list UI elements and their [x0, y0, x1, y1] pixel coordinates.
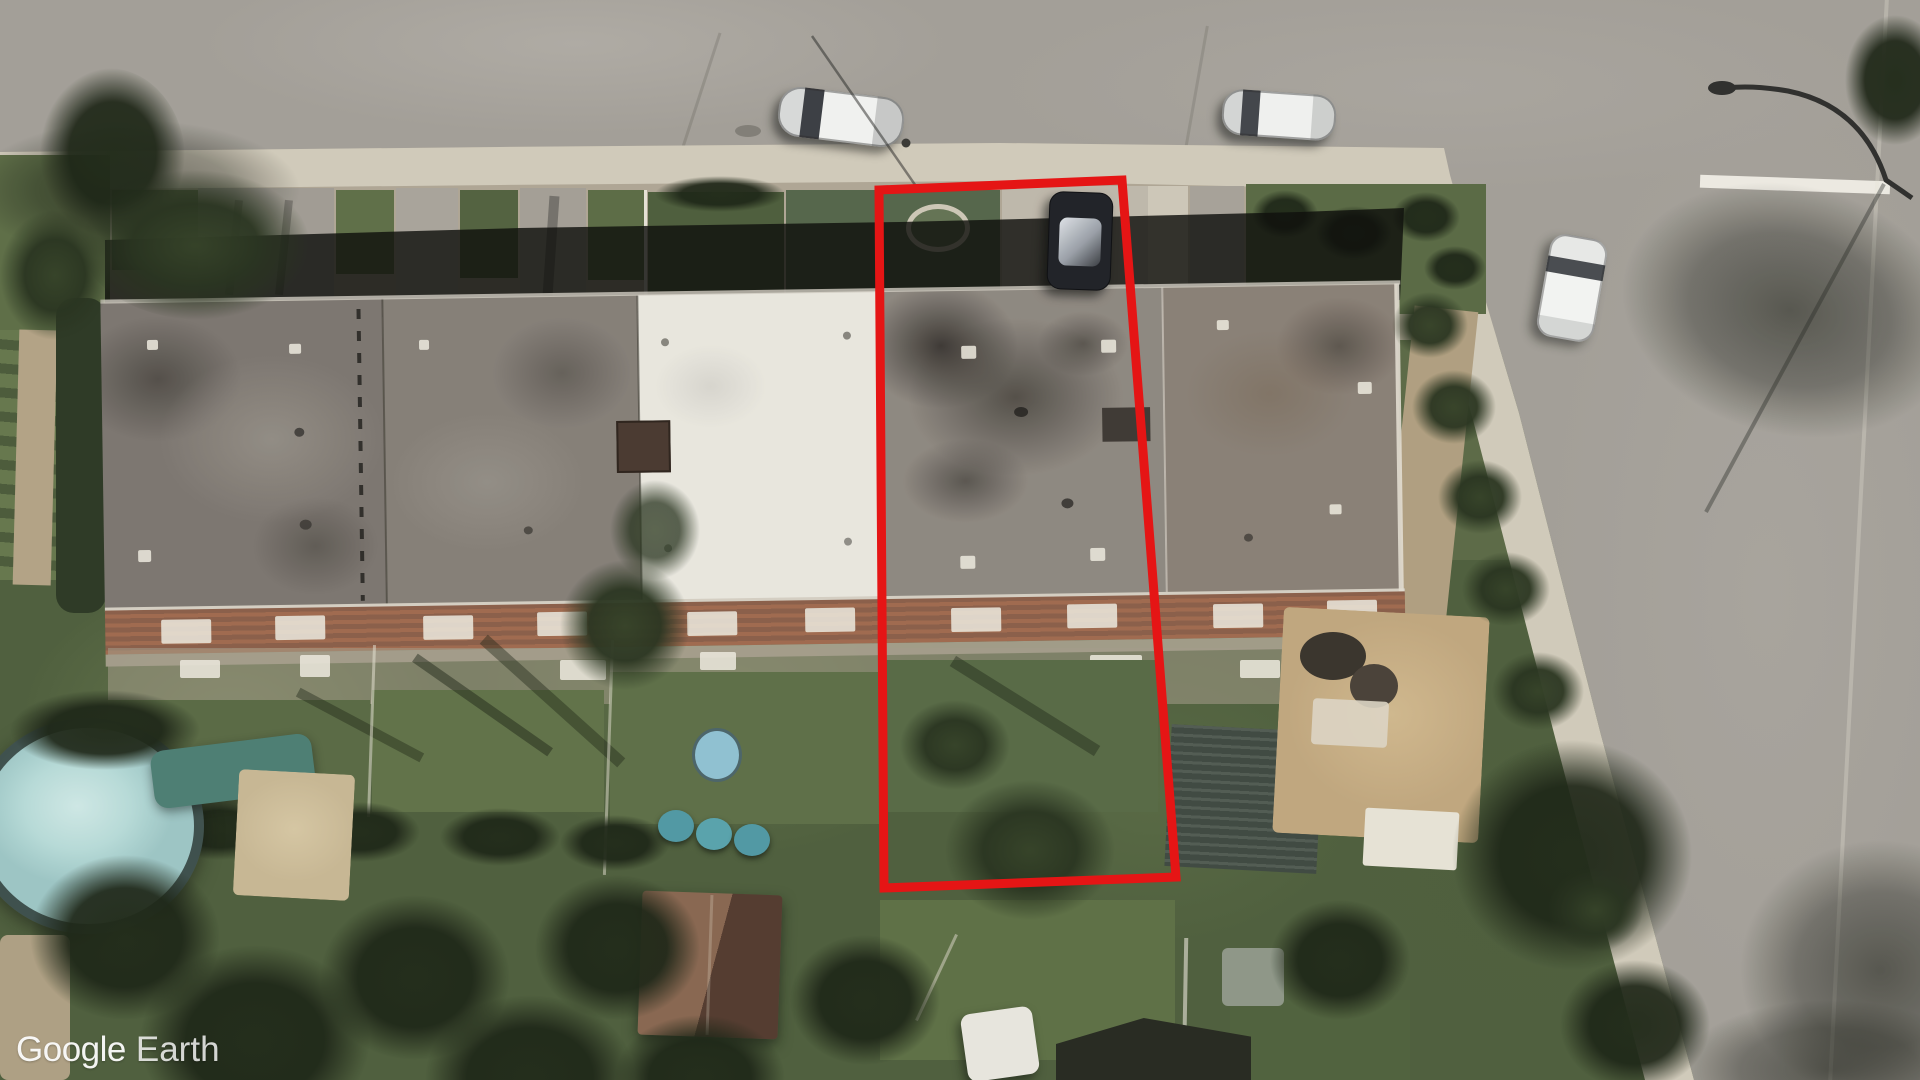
roof-unit-1: [100, 298, 387, 610]
patio-door: [1067, 604, 1117, 629]
watermark-earth: Earth: [136, 1030, 220, 1070]
roof-mark: [843, 332, 851, 340]
kiddie-pool-round: [658, 810, 694, 842]
patio-door: [423, 615, 473, 640]
patio-door: [687, 611, 737, 636]
patio-object: [700, 652, 736, 670]
patio-door: [161, 619, 211, 644]
tree-canopy: [535, 875, 700, 1020]
front-hedge: [655, 176, 785, 212]
kiddie-pool-round: [734, 824, 770, 856]
hedgerow: [1492, 652, 1584, 730]
backyard-tree: [610, 480, 700, 580]
tree-canopy: [790, 935, 940, 1065]
roof-unit-4-stained: [877, 287, 1167, 599]
patio-object: [180, 660, 220, 678]
patio-object: [1240, 660, 1280, 678]
tree-canopy: [1270, 900, 1410, 1020]
left-dirt-path: [13, 330, 58, 586]
white-trailer: [960, 1005, 1041, 1080]
patio-door: [805, 608, 855, 633]
kiddie-pool-round: [696, 818, 732, 850]
roof-mark: [661, 338, 669, 346]
patio-door: [1213, 603, 1263, 628]
parked-car-white: [1221, 88, 1338, 142]
roof-vent: [960, 556, 975, 569]
roof-vent: [138, 550, 151, 562]
roof-vent: [1358, 382, 1372, 394]
tree-bottom-right: [1560, 960, 1710, 1080]
black-suv-roof-glare: [1058, 217, 1102, 266]
google-earth-watermark: Google Earth: [16, 1030, 220, 1070]
patio-object: [300, 655, 330, 677]
roof-unit-5: [1162, 283, 1402, 594]
patio-door: [951, 607, 1001, 632]
backyard-lawn: [610, 672, 882, 824]
tree-in-highlighted-yard: [900, 700, 1010, 790]
chimney: [616, 420, 671, 473]
tree-canopy-top-left: [0, 210, 110, 340]
hedgerow: [1392, 292, 1468, 358]
white-patio-mat: [1363, 808, 1460, 871]
roof-vent: [961, 346, 976, 359]
hedgerow: [1548, 868, 1643, 952]
roof-mark: [294, 428, 304, 437]
roof-vent: [1090, 548, 1105, 561]
roof-vent: [419, 340, 429, 350]
roof-mark: [524, 526, 533, 534]
hedgerow: [1462, 552, 1550, 626]
rowhouse-building: [100, 283, 1405, 666]
roof-vent: [1330, 504, 1342, 514]
patio-door: [275, 615, 325, 640]
roof-vent: [1217, 320, 1229, 330]
left-hedge: [56, 298, 106, 613]
roof-mark: [1244, 534, 1253, 542]
backyard-hedge: [440, 808, 560, 866]
roof-vent-unit: [1102, 407, 1150, 442]
picnic-table: [1311, 698, 1389, 748]
google-earth-map-viewport[interactable]: Google Earth: [0, 0, 1920, 1080]
roof-vent: [289, 344, 301, 354]
corner-shrub: [1424, 246, 1486, 290]
tree-in-highlighted-yard: [945, 780, 1115, 920]
hedgerow: [1438, 460, 1522, 534]
roof-mark: [844, 538, 852, 546]
kiddie-pool: [692, 728, 742, 782]
watermark-google: Google: [16, 1030, 126, 1070]
backyard-tree: [560, 560, 690, 690]
backyard-deck-tan: [233, 769, 355, 901]
hedgerow: [1412, 370, 1496, 444]
road-patch: [735, 125, 761, 137]
roof-vent: [147, 340, 158, 350]
backyard-hedge: [560, 815, 670, 871]
roof-vent: [1101, 340, 1116, 353]
